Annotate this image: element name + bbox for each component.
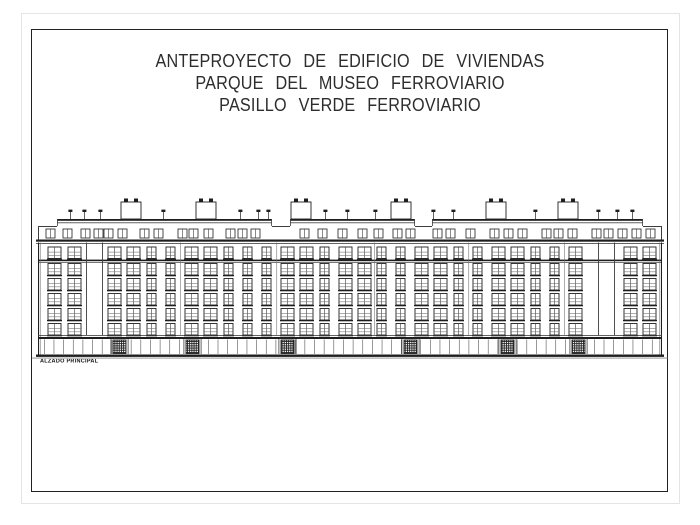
drawing-caption: ALZADO PRINCIPAL: [40, 359, 98, 365]
chimney-group: [121, 199, 578, 220]
vent-group: [68, 210, 634, 219]
roof-group: [38, 219, 662, 227]
elevation-drawing: [0, 0, 700, 525]
base-line-group: [32, 355, 668, 359]
entrance-doors-group: [111, 339, 588, 354]
attic-windows-group: [38, 226, 662, 240]
ground-floor-group: [38, 335, 662, 354]
drawing-sheet: ANTEPROYECTO DE EDIFICIO DE VIVIENDAS PA…: [0, 0, 700, 525]
